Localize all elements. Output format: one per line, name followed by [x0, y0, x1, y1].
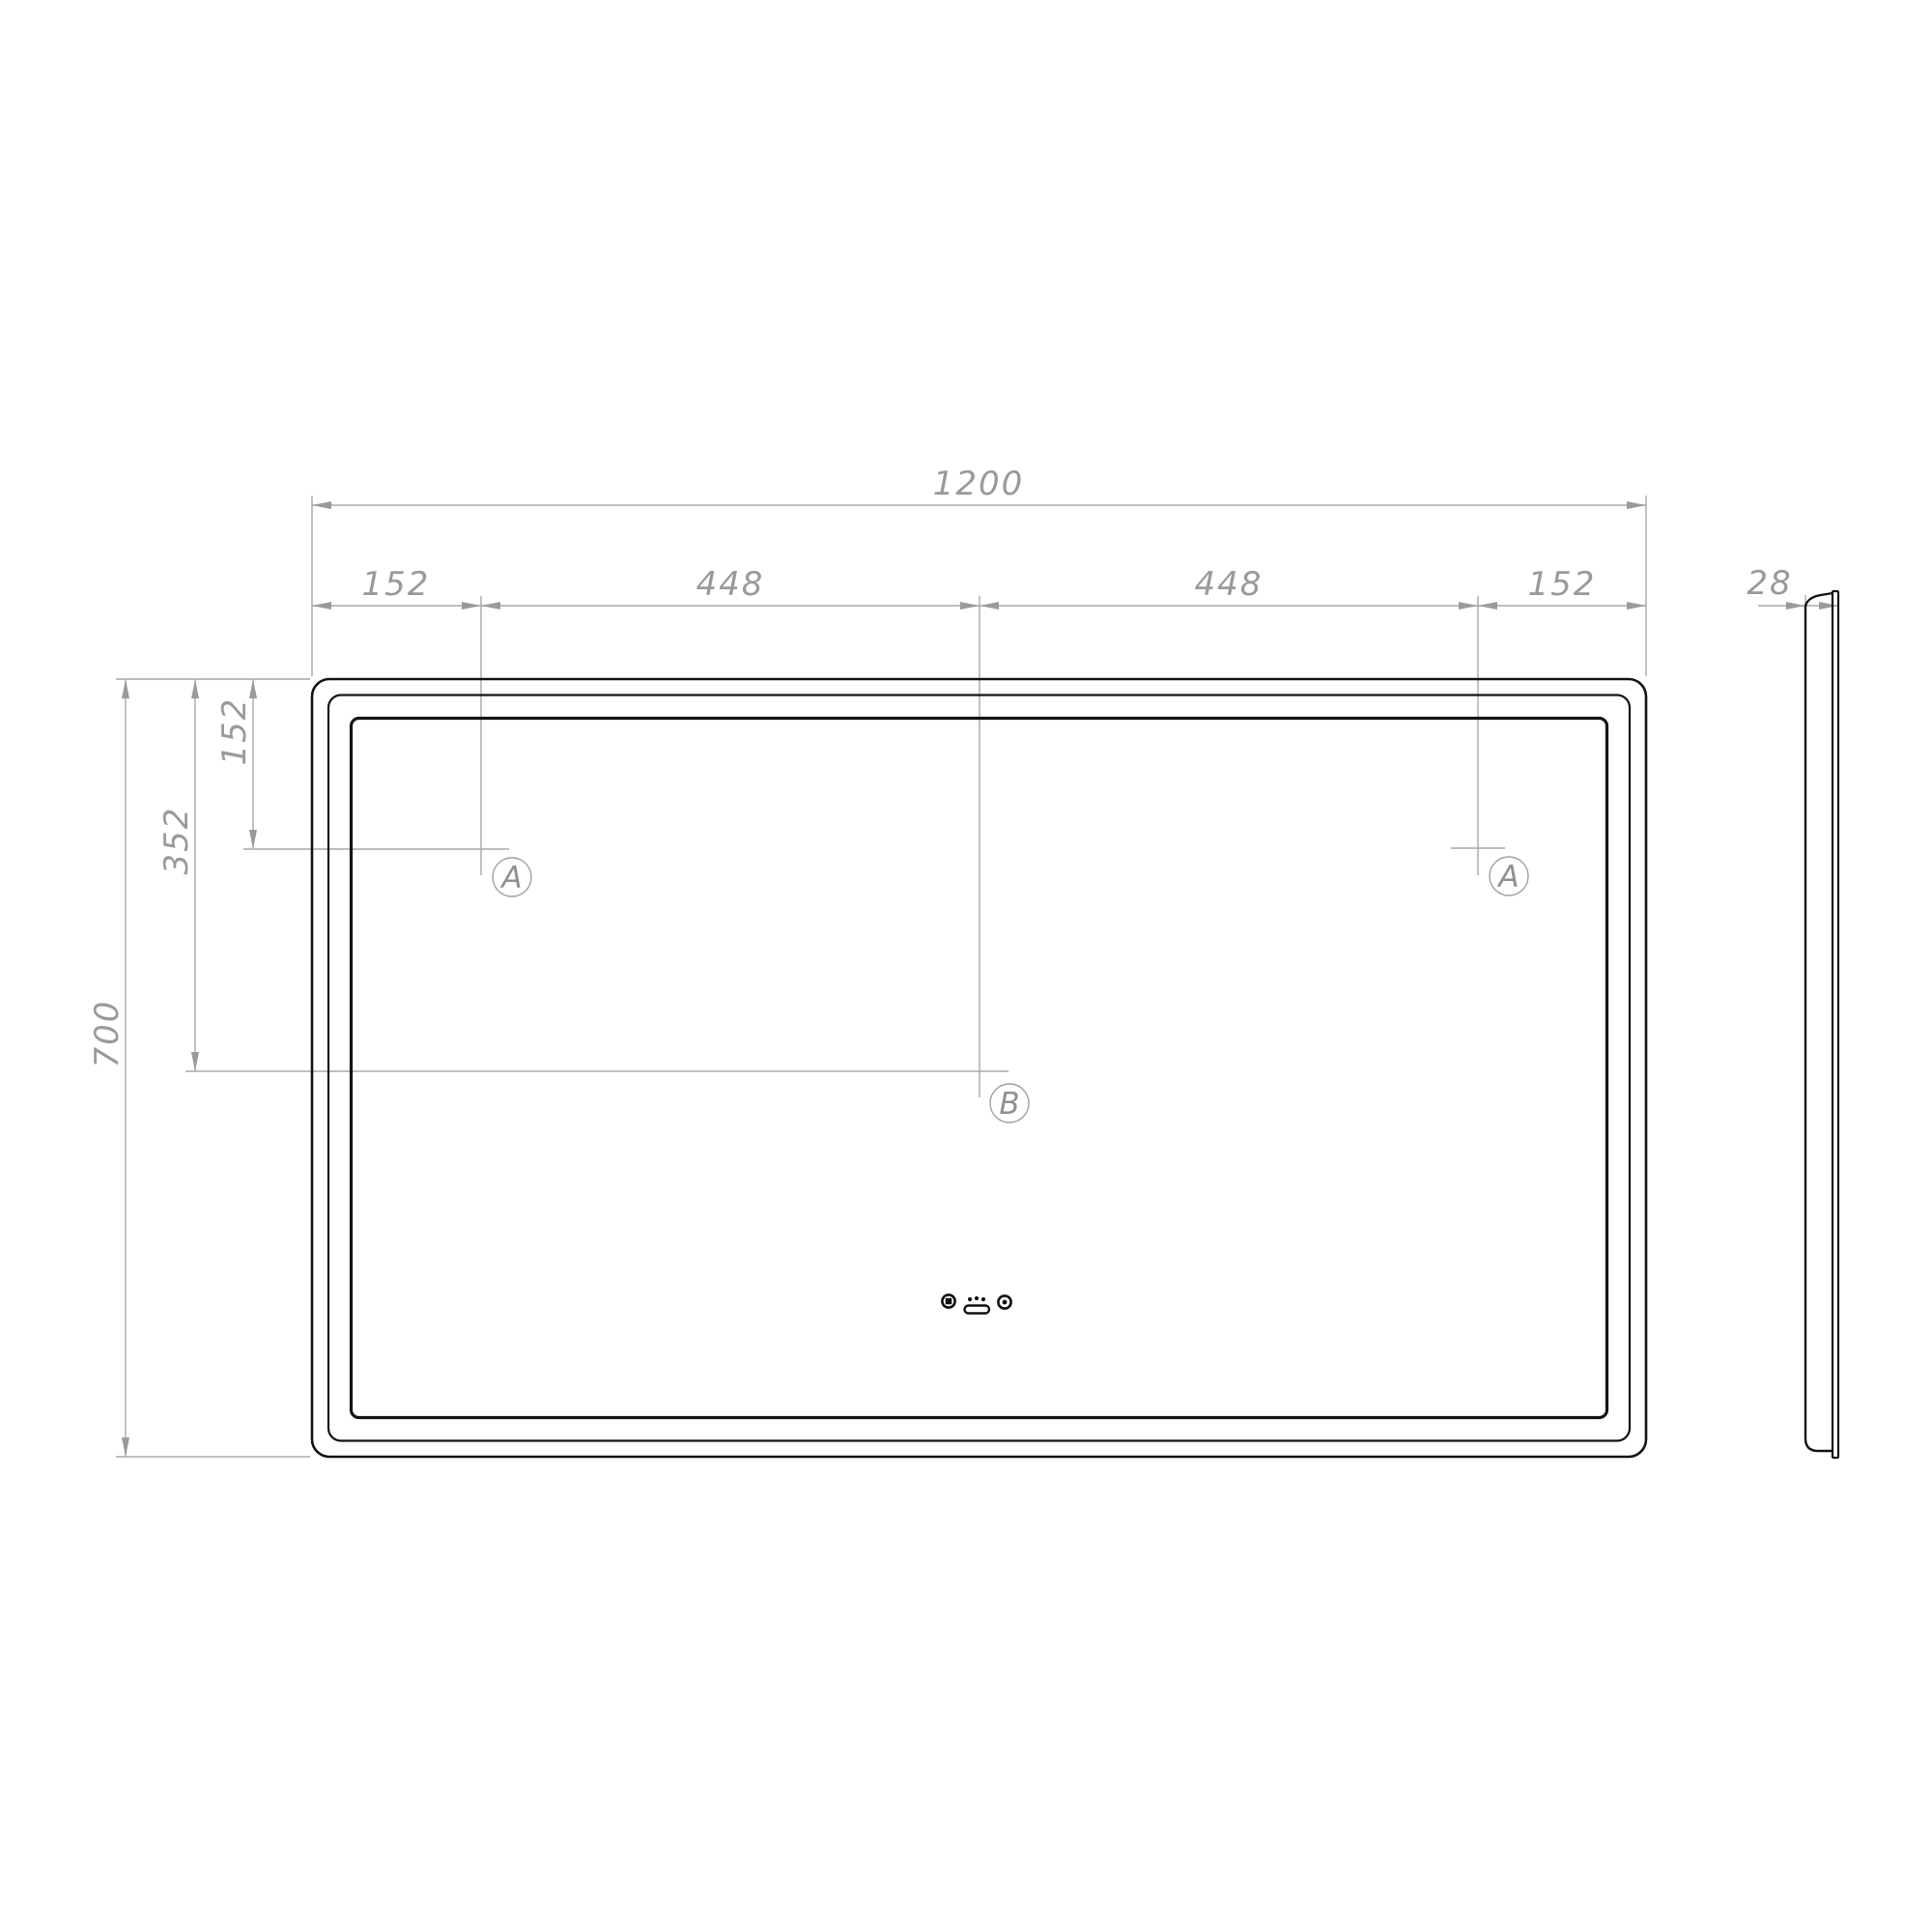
anti-fog-icon — [965, 1296, 990, 1314]
arrow-icon — [122, 679, 129, 698]
dim-height-152-label: 152 — [215, 697, 254, 766]
arrow-icon — [1459, 602, 1478, 610]
arrow-icon — [1819, 602, 1838, 610]
dim-height-total-label-group: 700 — [88, 1000, 127, 1068]
arrow-icon — [249, 679, 257, 698]
dim-height-352-label-group: 352 — [157, 807, 196, 875]
arrow-icon — [312, 501, 331, 509]
arrow-icon — [960, 602, 980, 610]
technical-drawing-page: 1200 152 448 448 152 152 — [0, 0, 1932, 1932]
dimmer-core — [946, 1298, 952, 1305]
arrow-icon — [249, 830, 257, 849]
side-body-back-edge — [1805, 605, 1833, 1451]
arrow-icon — [191, 1052, 199, 1071]
arrow-icon — [481, 602, 500, 610]
mirror-technical-drawing: 1200 152 448 448 152 152 — [0, 0, 1932, 1932]
marker-center-label: B — [999, 1087, 1019, 1122]
side-view — [1805, 591, 1838, 1458]
marker-hole-right-label: A — [1496, 860, 1519, 895]
heater-pad — [965, 1306, 990, 1314]
arrow-icon — [1478, 602, 1497, 610]
dim-height-total-label: 700 — [88, 1000, 127, 1068]
steam-dot — [968, 1297, 972, 1301]
dim-height-152-label-group: 152 — [215, 697, 254, 766]
arrow-icon — [312, 602, 331, 610]
dim-segment-label: 448 — [696, 565, 765, 604]
light-dot — [1003, 1300, 1008, 1305]
arrow-icon — [980, 602, 999, 610]
dim-width-total-label: 1200 — [933, 465, 1025, 503]
touch-controls — [942, 1294, 1010, 1313]
marker-hole-left-label: A — [499, 861, 522, 895]
arrow-icon — [191, 679, 199, 698]
dim-segment-label: 152 — [1528, 565, 1597, 604]
steam-dot — [975, 1296, 979, 1300]
dim-segment-label: 448 — [1195, 565, 1264, 604]
arrow-icon — [1786, 602, 1805, 610]
arrow-icon — [122, 1437, 129, 1457]
arrow-icon — [462, 602, 481, 610]
arrow-icon — [1627, 602, 1646, 610]
arrow-icon — [1627, 501, 1646, 509]
light-touch-icon — [998, 1295, 1010, 1308]
dim-thickness-label: 28 — [1747, 564, 1792, 603]
dim-height-352-label: 352 — [157, 807, 196, 875]
side-glass-panel — [1833, 591, 1838, 1458]
steam-dot — [981, 1297, 985, 1301]
dim-segment-label: 152 — [362, 565, 431, 604]
dimmer-touch-icon — [942, 1294, 954, 1307]
